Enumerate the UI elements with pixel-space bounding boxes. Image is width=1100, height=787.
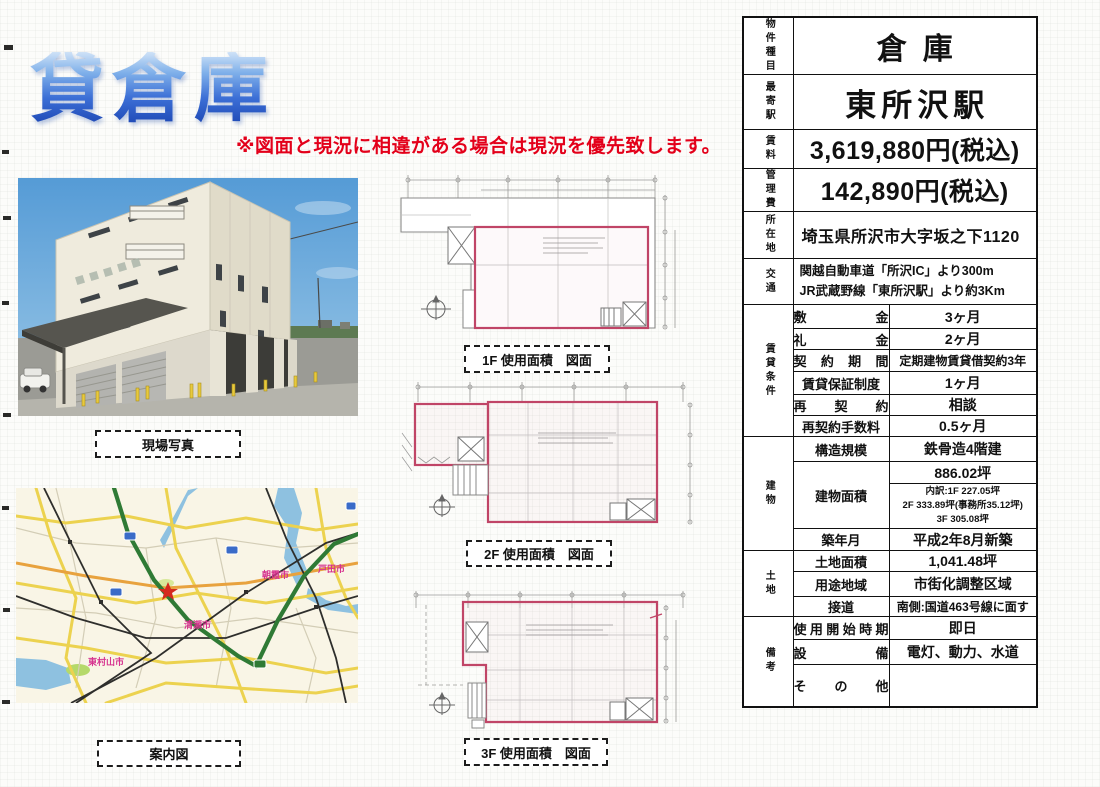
plan-1f-caption-label: 1F 使用面積 図面 [482, 350, 592, 369]
usage-area-outline [475, 227, 648, 328]
elevator-symbol [458, 437, 484, 461]
site-photo [18, 178, 358, 416]
recontract-fee-value: 0.5ヶ月 [889, 416, 1037, 437]
stairs-annex [468, 683, 486, 728]
floor-plan-1f [393, 170, 703, 338]
key-money-label: 礼 金 [793, 329, 889, 350]
dock-annex [463, 290, 475, 328]
recontract-label: 再 契 約 [793, 395, 889, 416]
equipment-label: 設 備 [793, 640, 889, 665]
category-lease-terms: 賃貸条件 [743, 305, 793, 437]
equipment-value: 電灯、動力、水道 [889, 640, 1037, 665]
building-area-breakdown: 内訳:1F 227.05坪 2F 333.89坪(事務所35.12坪) 3F 3… [889, 484, 1037, 529]
category-property-type: 物件種目 [743, 17, 793, 75]
plan-2f-caption-label: 2F 使用面積 図面 [484, 544, 594, 563]
elevator-symbol [448, 227, 475, 264]
category-rent: 賃料 [743, 130, 793, 169]
deposit-label: 敷 金 [793, 305, 889, 329]
scan-noise [4, 45, 13, 50]
plan-3f-caption-label: 3F 使用面積 図面 [481, 743, 591, 762]
city-label: 朝霞市 [262, 569, 289, 580]
recontract-fee-label: 再契約手数料 [793, 416, 889, 437]
scan-noise [3, 413, 11, 417]
access-value: 関越自動車道「所沢IC」より300m JR武蔵野線「東所沢駅」より約3Km [793, 259, 1037, 305]
elevator-symbol [466, 622, 488, 652]
map-caption: 案内図 [97, 740, 241, 767]
north-arrow-icon [421, 296, 451, 320]
scan-noise [2, 700, 10, 704]
guarantee-value: 1ヶ月 [889, 372, 1037, 395]
zoning-value: 市街化調整区域 [889, 572, 1037, 597]
category-address: 所在地 [743, 212, 793, 259]
recontract-value: 相談 [889, 395, 1037, 416]
contract-period-label: 契 約 期 間 [793, 350, 889, 372]
city-label: 戸田市 [318, 563, 345, 574]
category-building: 建物 [743, 437, 793, 551]
scan-noise [3, 608, 10, 612]
plan-1f-caption: 1F 使用面積 図面 [464, 345, 610, 373]
site-photo-illustration [18, 178, 358, 416]
stairs-annex [453, 465, 488, 495]
land-area-value: 1,041.48坪 [889, 551, 1037, 572]
address-value: 埼玉県所沢市大字坂之下1120 [793, 212, 1037, 259]
key-money-value: 2ヶ月 [889, 329, 1037, 350]
scan-noise [2, 150, 9, 154]
map-caption-label: 案内図 [149, 744, 188, 763]
category-nearest-station: 最寄駅 [743, 75, 793, 130]
north-arrow-icon [429, 693, 455, 715]
built-date-value: 平成2年8月新築 [889, 529, 1037, 551]
city-label: 清瀬市 [184, 619, 211, 630]
photo-caption-label: 現場写真 [142, 435, 194, 454]
area-map: 清瀬市 東村山市 朝霞市 戸田市 [16, 488, 358, 703]
building-area-value: 886.02坪 [889, 462, 1037, 484]
category-access: 交通 [743, 259, 793, 305]
availability-label: 使用開始時期 [793, 617, 889, 640]
category-remarks: 備考 [743, 617, 793, 707]
land-area-label: 土地面積 [793, 551, 889, 572]
nearest-station-value: 東所沢駅 [793, 75, 1037, 130]
structure-label: 構造規模 [793, 437, 889, 462]
disclaimer-text: ※図面と現況に相違がある場合は現況を優先致します。 [236, 131, 721, 158]
property-spec-table: 物件種目 倉庫 最寄駅 東所沢駅 賃料 3,619,880円(税込) 管理費 1… [742, 16, 1038, 708]
building-area-label: 建物面積 [793, 462, 889, 529]
north-arrow-icon [429, 495, 455, 517]
plan-3f-caption: 3F 使用面積 図面 [464, 738, 608, 766]
scan-noise [2, 301, 9, 305]
other-value [889, 665, 1037, 707]
scan-noise [3, 216, 11, 220]
floor-plan-3f [398, 590, 703, 735]
deposit-value: 3ヶ月 [889, 305, 1037, 329]
loading-bays [210, 330, 297, 396]
city-label: 東村山市 [88, 656, 124, 667]
guarantee-label: 賃貸保証制度 [793, 372, 889, 395]
management-fee-value: 142,890円(税込) [793, 169, 1037, 212]
scan-noise [2, 506, 9, 510]
road-access-label: 接道 [793, 597, 889, 617]
road-access-value: 南側:国道463号線に面す [889, 597, 1037, 617]
rent-value: 3,619,880円(税込) [793, 130, 1037, 169]
contract-period-value: 定期建物賃貸借契約3年 [889, 350, 1037, 372]
plan-2f-caption: 2F 使用面積 図面 [466, 540, 612, 567]
page-title: 貸倉庫 [30, 52, 276, 126]
zoning-label: 用途地域 [793, 572, 889, 597]
property-type-value: 倉庫 [793, 17, 1037, 75]
photo-caption: 現場写真 [95, 430, 241, 458]
category-land: 土地 [743, 551, 793, 617]
floor-plan-2f [398, 375, 703, 525]
structure-value: 鉄骨造4階建 [889, 437, 1037, 462]
other-label: そ の 他 [793, 665, 889, 707]
category-management-fee: 管理費 [743, 169, 793, 212]
availability-value: 即日 [889, 617, 1037, 640]
built-date-label: 築年月 [793, 529, 889, 551]
area-map-illustration: 清瀬市 東村山市 朝霞市 戸田市 [16, 488, 358, 703]
